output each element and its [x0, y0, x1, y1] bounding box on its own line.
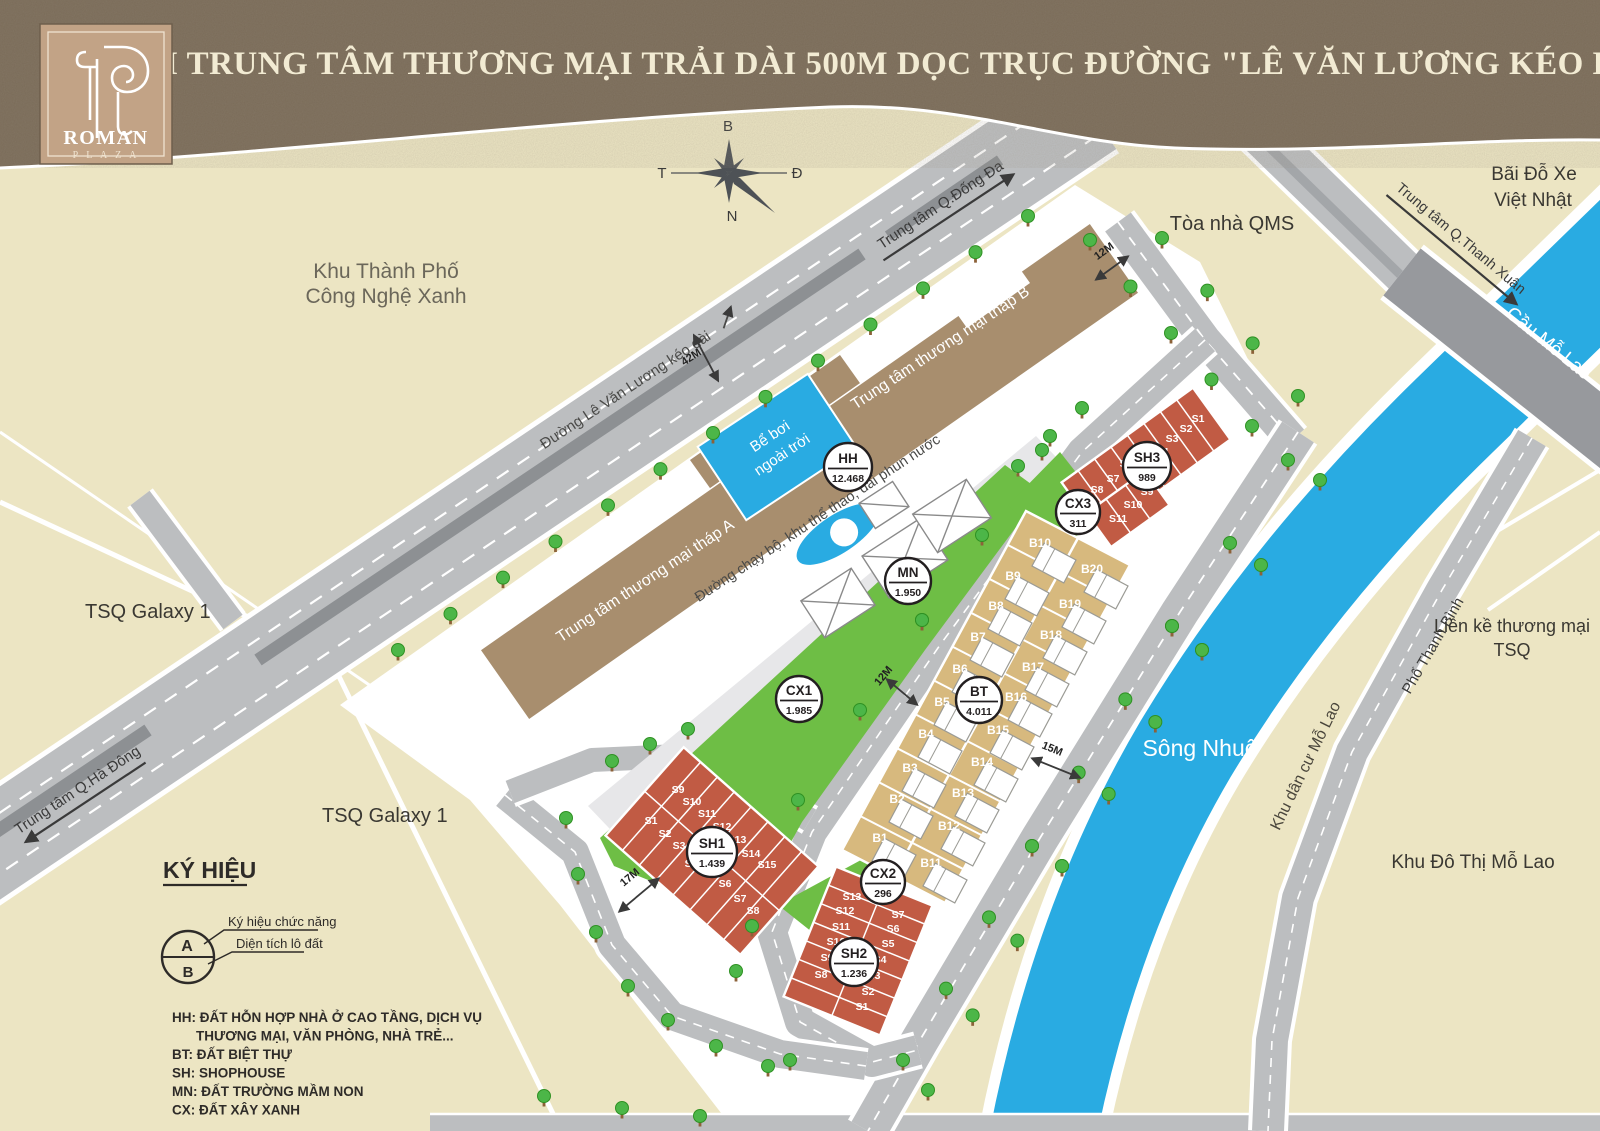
lot-label-bt: B2 [889, 792, 905, 806]
legend-item: MN: ĐẤT TRƯỜNG MẦM NON [172, 1084, 363, 1099]
neighbor-green-tech-line2: Công Nghệ Xanh [305, 285, 466, 308]
lot-label-sh1: S2 [659, 828, 672, 840]
lot-label-bt: B20 [1081, 562, 1103, 576]
lot-label-bt: B14 [971, 755, 993, 769]
legend-symbol-a: A [181, 938, 193, 955]
lot-label-sh3: S1 [1192, 413, 1205, 425]
lot-label-sh1: S6 [719, 878, 732, 890]
badge-code: SH2 [841, 946, 867, 961]
lot-label-bt: B10 [1029, 536, 1051, 550]
lot-label-bt: B5 [934, 695, 950, 709]
compass-east: Đ [792, 165, 803, 182]
logo-name: ROMAN [63, 127, 148, 149]
lot-label-sh1: S15 [758, 859, 777, 871]
badge-cx1: CX11.985 [776, 676, 822, 722]
legend-item: HH: ĐẤT HỖN HỢP NHÀ Ở CAO TẦNG, DỊCH VỤ [172, 1010, 482, 1025]
legend-item: SH: SHOPHOUSE [172, 1066, 285, 1081]
neighbor-parking-line2: Việt Nhật [1494, 190, 1573, 211]
lot-label-sh1: S3 [673, 840, 686, 852]
lot-label-sh1: S9 [672, 784, 685, 796]
lot-label-sh2: S6 [887, 923, 900, 935]
legend-callout-a: Ký hiệu chức năng [228, 914, 336, 929]
badge-code: HH [838, 451, 858, 466]
badge-mn: MN1.950 [885, 558, 931, 604]
compass-south: N [727, 208, 738, 225]
lot-label-sh1: S7 [734, 893, 747, 905]
badge-bt: BT4.011 [956, 677, 1002, 723]
lot-label-bt: B8 [988, 599, 1004, 613]
badge-value: 1.439 [699, 858, 725, 870]
badge-sh1: SH11.439 [687, 827, 737, 877]
badge-value: 311 [1070, 518, 1087, 530]
badge-value: 4.011 [966, 706, 992, 718]
lot-label-sh3: S11 [1109, 513, 1127, 525]
badge-value: 296 [874, 888, 892, 900]
legend-item: CX: ĐẤT XÂY XANH [172, 1103, 300, 1118]
lot-label-bt: B6 [952, 662, 968, 676]
badge-value: 1.985 [786, 705, 812, 717]
lot-label-bt: B1 [872, 831, 888, 845]
lot-label-sh2: S7 [892, 909, 905, 921]
neighbor-lien-ke-line2: TSQ [1493, 640, 1530, 660]
lot-label-sh3: S7 [1107, 473, 1120, 485]
compass-west: T [657, 165, 666, 182]
lot-label-bt: B12 [938, 819, 960, 833]
logo-subname: P L A Z A [73, 150, 140, 161]
legend-callout-b: Diện tích lô đất [236, 936, 323, 951]
badge-code: CX1 [786, 683, 813, 698]
legend-title: KÝ HIỆU [163, 856, 256, 883]
river-label: Sông Nhuệ [1142, 735, 1257, 761]
logo-roman-plaza: ROMAN P L A Z A [40, 24, 172, 164]
legend-item: THƯƠNG MẠI, VĂN PHÒNG, NHÀ TRẺ... [196, 1029, 453, 1044]
lot-label-sh3: S2 [1180, 423, 1193, 435]
badge-code: CX3 [1065, 496, 1092, 511]
lot-label-bt: B15 [987, 723, 1009, 737]
badge-code: SH3 [1134, 450, 1161, 465]
badge-sh3: SH3989 [1123, 442, 1171, 490]
lot-label-sh2: S13 [843, 891, 862, 903]
map-canvas: Bể bơi ngoài trời Trung tâm thương mại t… [0, 0, 1600, 1131]
lot-label-sh3: S10 [1124, 499, 1143, 511]
lot-label-sh1: S11 [698, 808, 716, 820]
lot-label-bt: B18 [1040, 628, 1062, 642]
badge-code: BT [970, 684, 989, 699]
badge-value: 1.236 [841, 968, 867, 980]
lot-label-sh2: S1 [856, 1001, 869, 1013]
lot-label-bt: B19 [1059, 597, 1081, 611]
lot-label-sh2: S5 [882, 938, 895, 950]
neighbor-qms: Tòa nhà QMS [1170, 213, 1295, 235]
lot-label-sh3: S3 [1166, 433, 1179, 445]
badge-cx2: CX2296 [861, 860, 905, 904]
lot-label-sh2: S2 [862, 986, 875, 998]
neighbor-tsq-a: TSQ Galaxy 1 [85, 601, 211, 623]
badge-value: 1.950 [895, 587, 921, 599]
compass-north: B [723, 118, 733, 135]
neighbor-lien-ke-line1: Liền kề thương mại [1434, 616, 1590, 636]
neighbor-khu-do-thi: Khu Đô Thị Mỗ Lao [1391, 851, 1554, 873]
lot-label-bt: B4 [918, 727, 934, 741]
badge-sh2: SH21.236 [830, 938, 878, 986]
legend-symbol-b: B [183, 964, 194, 981]
lot-label-bt: B11 [920, 856, 942, 870]
lot-label-sh1: S1 [645, 815, 658, 827]
lot-label-sh2: S11 [832, 921, 850, 933]
lot-label-sh1: S10 [683, 796, 702, 808]
poster-title: KHỐI TRUNG TÂM THƯƠNG MẠI TRẢI DÀI 500M … [87, 43, 1600, 82]
lot-label-bt: B7 [970, 630, 986, 644]
badge-code: CX2 [870, 866, 896, 881]
neighbor-tsq-b: TSQ Galaxy 1 [322, 805, 448, 827]
badge-value: 12.468 [832, 473, 864, 485]
badge-cx3: CX3311 [1056, 490, 1100, 534]
badge-code: MN [898, 565, 919, 580]
badge-value: 989 [1138, 472, 1156, 484]
lot-label-bt: B13 [952, 786, 974, 800]
site-plan-poster: Bể bơi ngoài trời Trung tâm thương mại t… [0, 0, 1600, 1131]
lot-label-bt: B3 [902, 761, 918, 775]
neighbor-green-tech-line1: Khu Thành Phố [313, 260, 459, 283]
legend-item: BT: ĐẤT BIỆT THỰ [172, 1047, 293, 1062]
lot-label-bt: B17 [1022, 660, 1044, 674]
lot-label-sh1: S8 [747, 905, 760, 917]
lot-label-bt: B16 [1005, 690, 1027, 704]
lot-label-bt: B9 [1005, 569, 1021, 583]
badge-code: SH1 [699, 836, 726, 851]
neighbor-parking-line1: Bãi Đỗ Xe [1491, 163, 1577, 185]
badge-hh: HH12.468 [824, 443, 872, 491]
lot-label-sh2: S8 [815, 969, 828, 981]
lot-label-sh2: S12 [836, 905, 855, 917]
